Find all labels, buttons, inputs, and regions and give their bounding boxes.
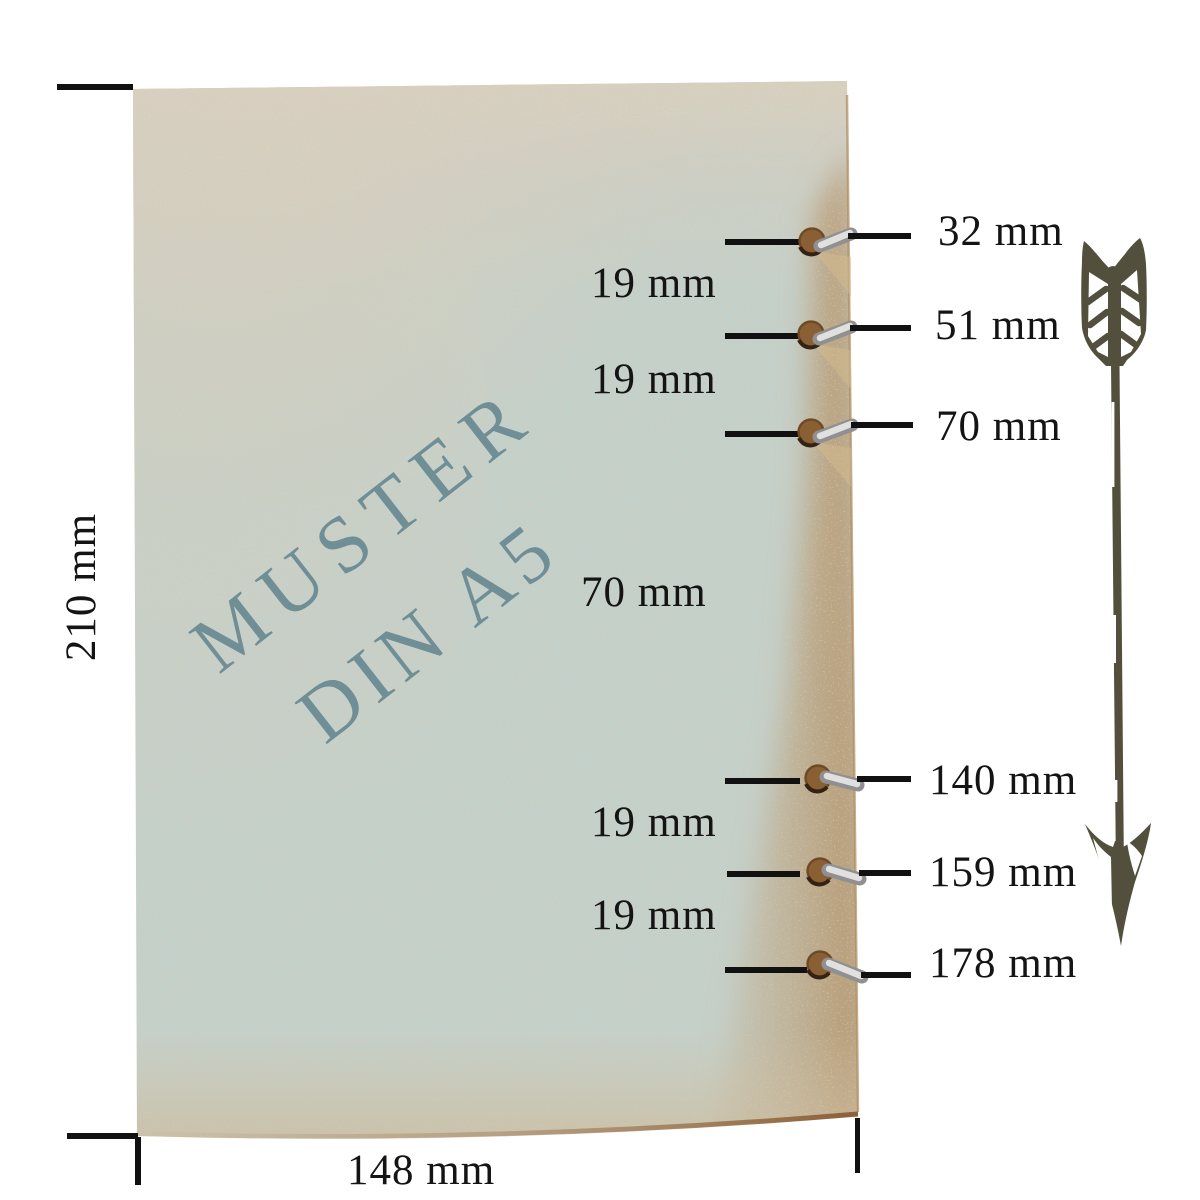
- svg-text:70 mm: 70 mm: [581, 569, 707, 616]
- svg-text:159 mm: 159 mm: [929, 849, 1077, 896]
- svg-text:19 mm: 19 mm: [591, 799, 717, 846]
- svg-text:19 mm: 19 mm: [591, 260, 717, 307]
- svg-text:19 mm: 19 mm: [591, 356, 717, 403]
- svg-text:148 mm: 148 mm: [347, 1147, 495, 1194]
- svg-text:178 mm: 178 mm: [929, 940, 1077, 987]
- svg-text:32 mm: 32 mm: [938, 208, 1064, 255]
- svg-text:210 mm: 210 mm: [58, 513, 105, 661]
- svg-text:51 mm: 51 mm: [935, 302, 1061, 349]
- svg-text:140 mm: 140 mm: [929, 757, 1077, 804]
- svg-text:70 mm: 70 mm: [936, 403, 1062, 450]
- svg-text:19 mm: 19 mm: [591, 892, 717, 939]
